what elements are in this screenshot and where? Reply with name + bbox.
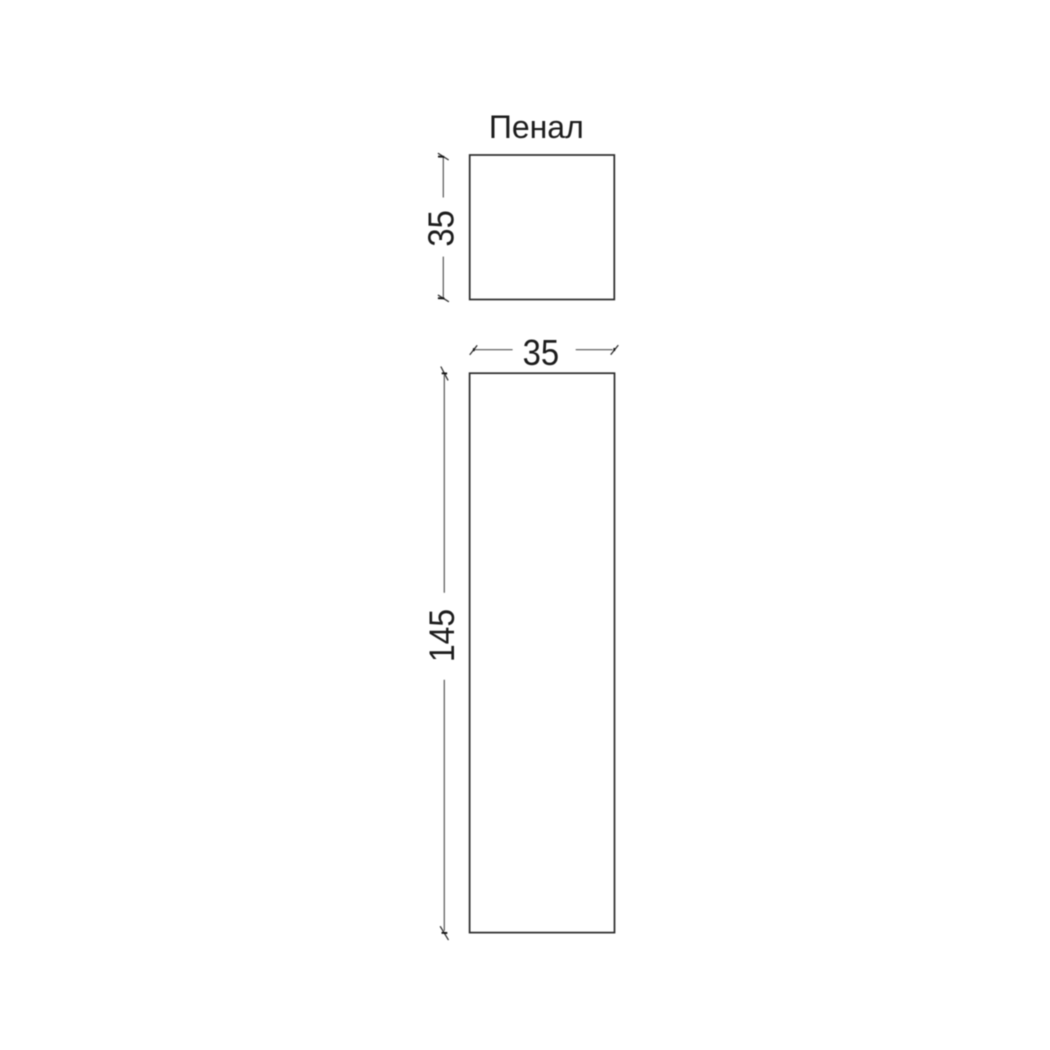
svg-text:35: 35	[421, 210, 462, 247]
svg-text:Пенал: Пенал	[489, 109, 584, 145]
svg-text:35: 35	[523, 332, 560, 373]
svg-text:145: 145	[422, 609, 462, 662]
